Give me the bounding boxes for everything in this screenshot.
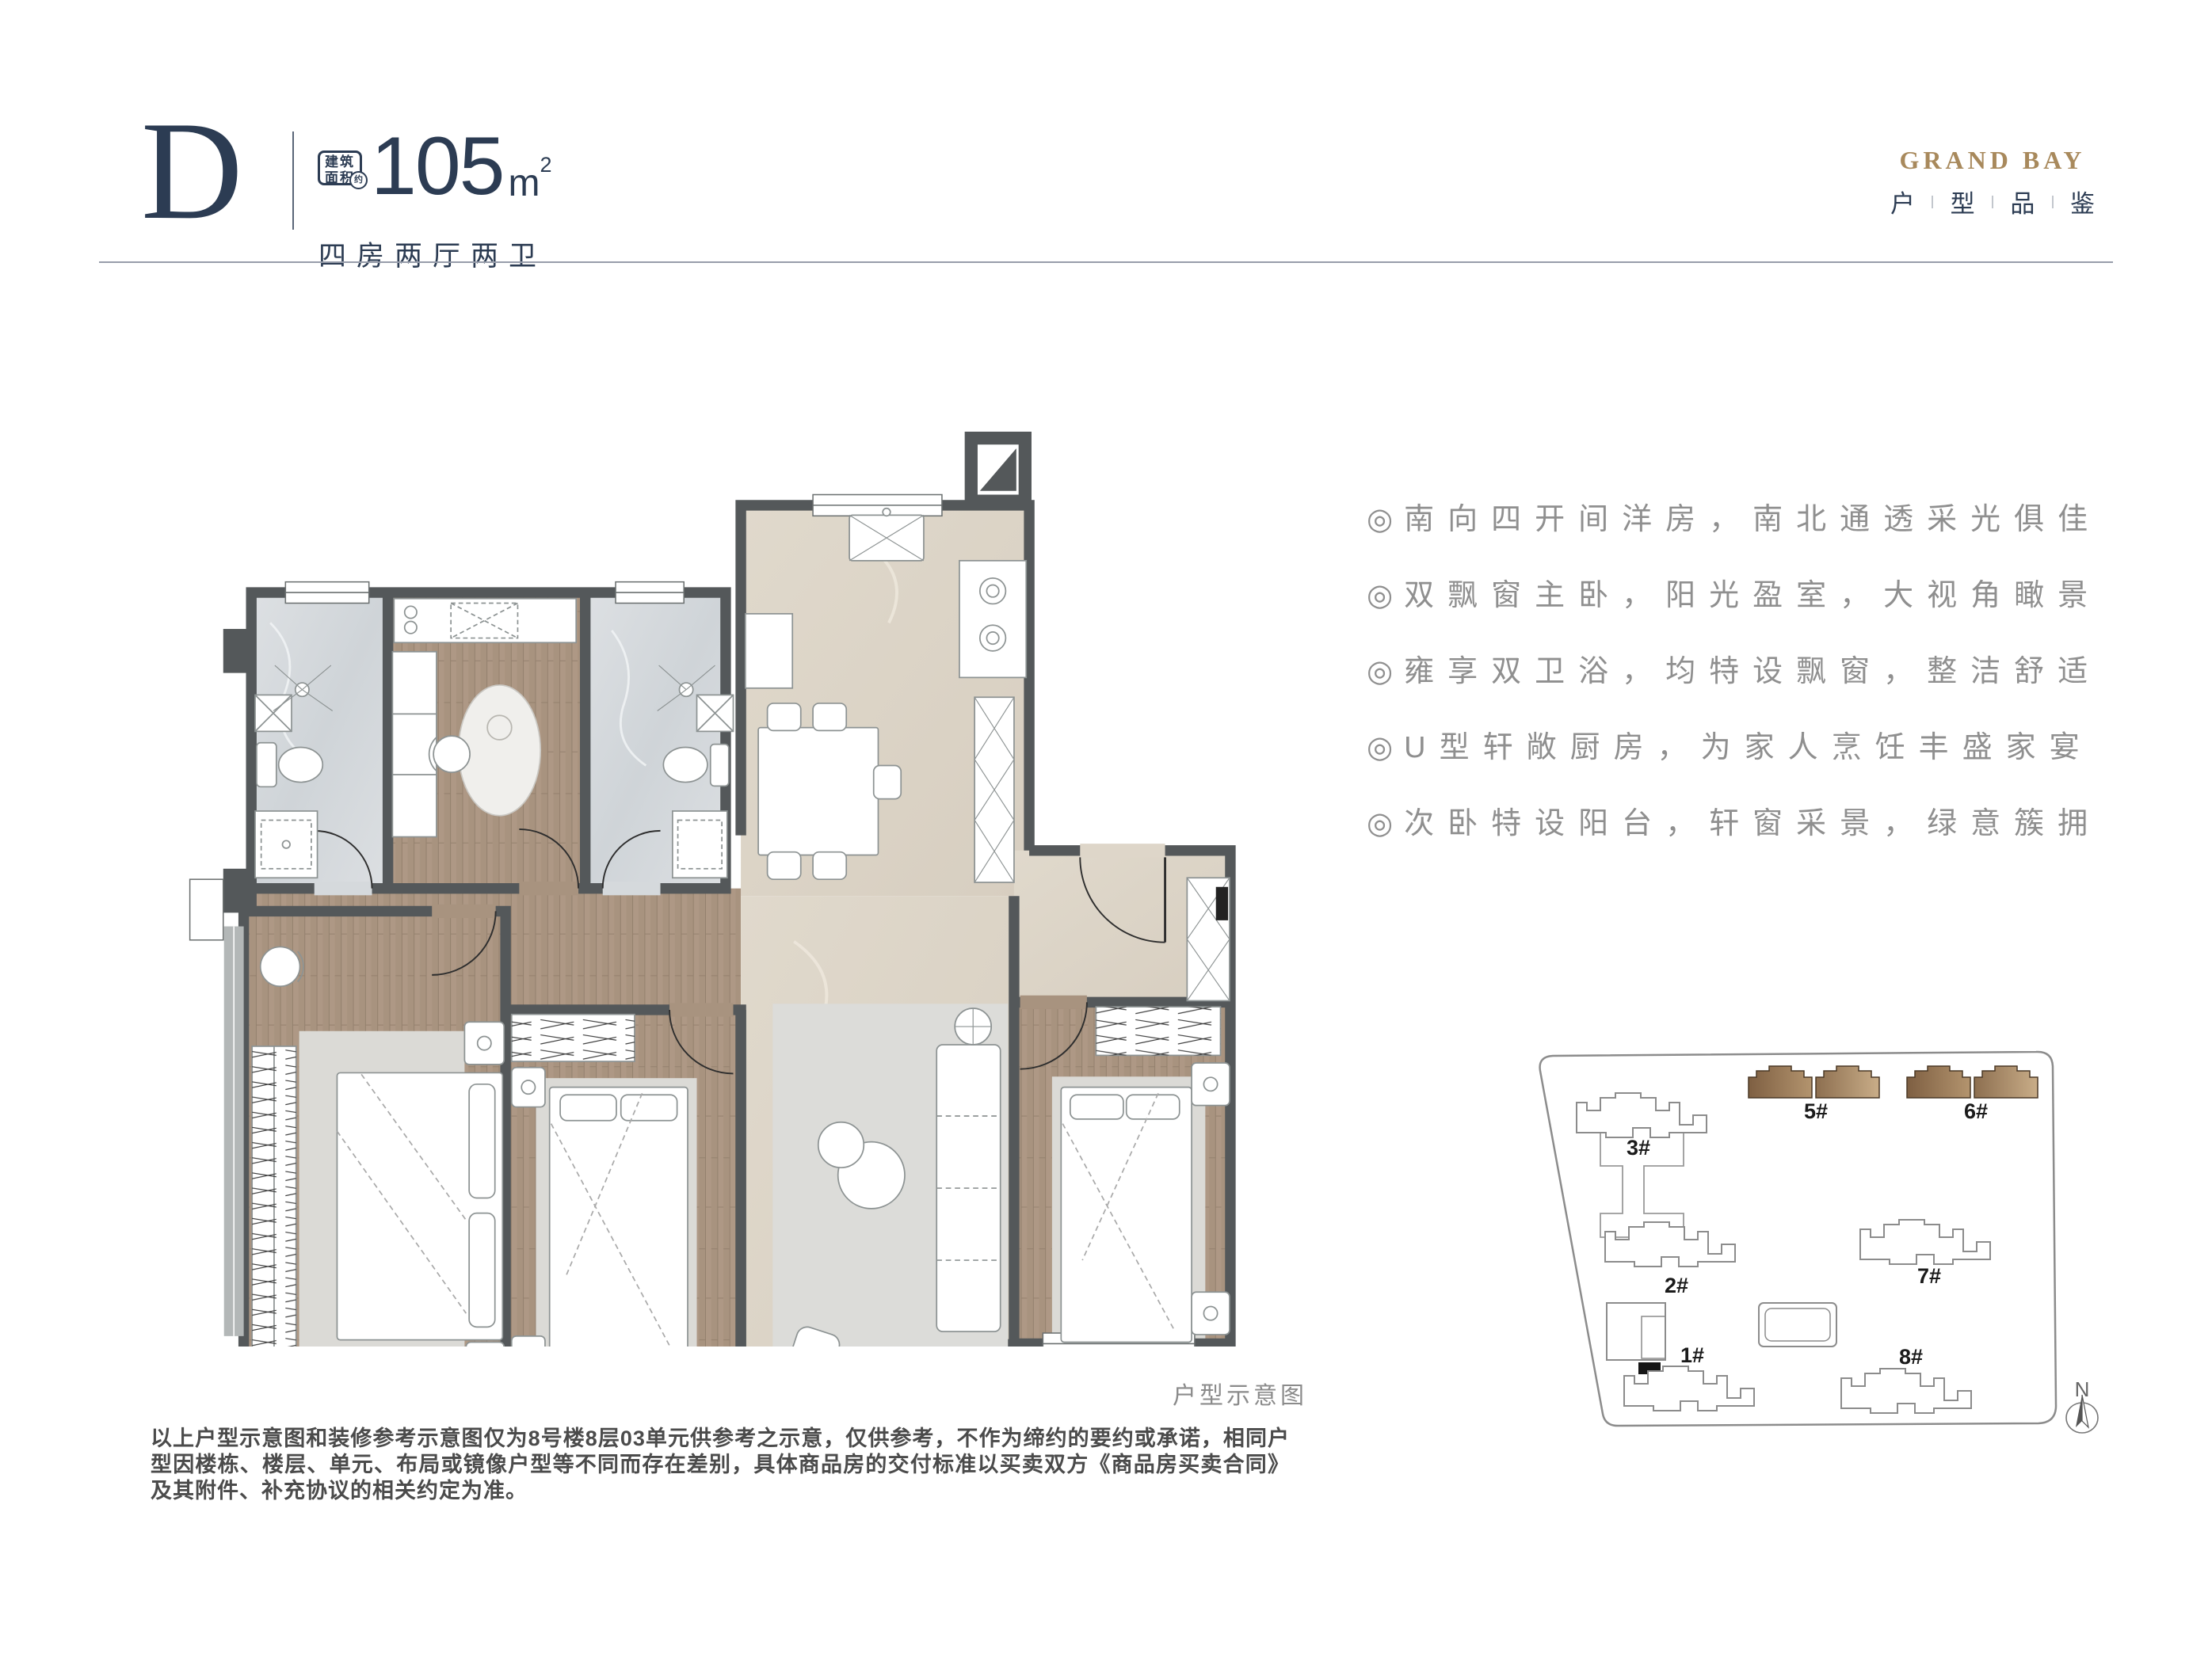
tagline-separator [1992, 196, 1993, 208]
building-label: 5# [1804, 1099, 1828, 1123]
tagline-char: 型 [1951, 184, 1975, 219]
bullet-icon: ◎ [1367, 580, 1393, 611]
feature-item: ◎ 次卧特设阳台，轩窗采景，绿意簇拥 [1367, 808, 2119, 840]
tagline-separator [2052, 196, 2054, 208]
floorplan-caption: 户型示意图 [1173, 1376, 1307, 1411]
unit-letter: D [141, 103, 243, 238]
building-3: 3# [1577, 1093, 1707, 1160]
brand-tagline: 户 型 品 鉴 [1890, 184, 2095, 219]
area-badge-line1: 建筑 [320, 154, 360, 170]
area-badge-approx: 约 [349, 171, 368, 189]
bullet-icon: ◎ [1367, 808, 1393, 840]
feature-item: ◎ 双飘窗主卧，阳光盈室，大视角瞰景 [1367, 580, 2119, 611]
building-2: 2# [1605, 1222, 1735, 1297]
feature-text: U型轩敞厨房，为家人烹饪丰盛家宴 [1404, 732, 2092, 764]
building-label: 7# [1917, 1264, 1941, 1288]
area-value: 105 [371, 125, 504, 208]
tagline-char: 户 [1890, 184, 1915, 219]
bullet-icon: ◎ [1367, 732, 1393, 764]
building-label: 3# [1627, 1136, 1650, 1160]
feature-list: ◎ 南向四开间洋房，南北通透采光俱佳 ◎ 双飘窗主卧，阳光盈室，大视角瞰景 ◎ … [1367, 504, 2119, 884]
feature-item: ◎ U型轩敞厨房，为家人烹饪丰盛家宴 [1367, 732, 2119, 764]
building-1: 1# [1607, 1303, 1754, 1411]
feature-text: 南向四开间洋房，南北通透采光俱佳 [1404, 504, 2101, 535]
siteplan-drawing: 3# 2# 1# 5# 6# 7# 8# N [1521, 1030, 2123, 1473]
disclaimer-text: 以上户型示意图和装修参考示意图仅为8号楼8层03单元供参考之示意，仅供参考，不作… [151, 1426, 1290, 1504]
building-label: 8# [1899, 1345, 1923, 1369]
amenity-pool [1759, 1303, 1836, 1347]
area-unit: m [509, 165, 540, 203]
area-badge: 建筑 面积 约 [318, 150, 362, 185]
feature-text: 双飘窗主卧，阳光盈室，大视角瞰景 [1404, 580, 2101, 611]
area-superscript: 2 [540, 154, 552, 176]
tagline-char: 品 [2010, 184, 2035, 219]
feature-item: ◎ 南向四开间洋房，南北通透采光俱佳 [1367, 504, 2119, 535]
building-label: 6# [1964, 1099, 1988, 1123]
bullet-icon: ◎ [1367, 504, 1393, 535]
feature-text: 次卧特设阳台，轩窗采景，绿意簇拥 [1404, 808, 2101, 840]
building-7: 7# [1860, 1220, 1990, 1288]
building-6-highlighted: 6# [1907, 1066, 2038, 1123]
area-value-row: 105 m 2 [371, 125, 552, 208]
header-rule [99, 261, 2113, 263]
bullet-icon: ◎ [1367, 656, 1393, 688]
feature-item: ◎ 雍享双卫浴，均特设飘窗，整洁舒适 [1367, 656, 2119, 688]
compass-icon: N [2066, 1377, 2098, 1433]
foyer-cabinet [1187, 878, 1230, 1000]
brand-name: GRAND BAY [1889, 146, 2096, 175]
feature-text: 雍享双卫浴，均特设飘窗，整洁舒适 [1404, 656, 2101, 688]
floorplan-drawing [111, 364, 1283, 1347]
header-divider-vertical [292, 131, 294, 230]
building-5-highlighted: 5# [1749, 1066, 1879, 1123]
building-8: 8# [1841, 1345, 1971, 1413]
building-label: 1# [1680, 1343, 1704, 1367]
layout-description: 四房两厅两卫 [318, 234, 547, 274]
building-label: 2# [1665, 1274, 1688, 1297]
tagline-separator [1932, 196, 1933, 208]
tagline-char: 鉴 [2070, 184, 2095, 219]
kitchen-flue [965, 432, 1032, 508]
